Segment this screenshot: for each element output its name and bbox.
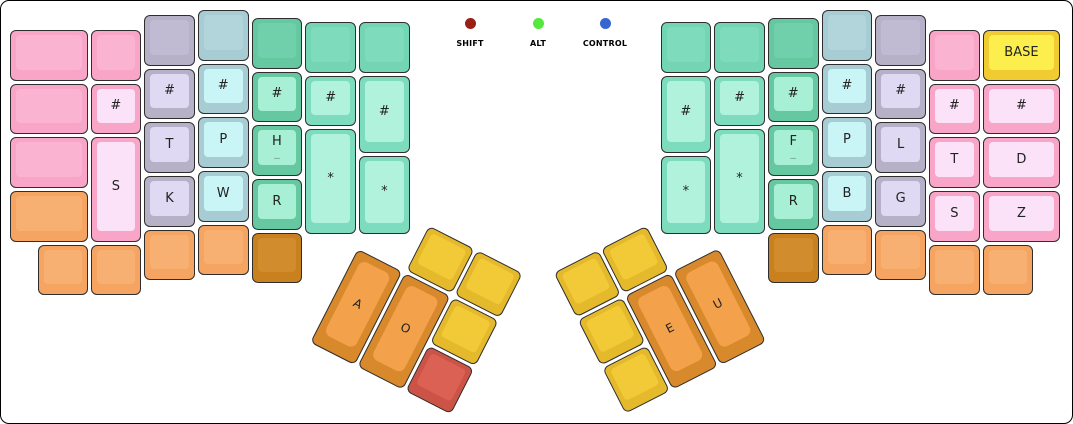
key-blank[interactable] <box>144 15 195 66</box>
key-hash[interactable]: # <box>252 72 303 123</box>
key-blank[interactable] <box>929 245 980 296</box>
key-blank[interactable] <box>875 15 926 66</box>
key-blank[interactable] <box>252 18 303 69</box>
key-hash[interactable]: # <box>144 69 195 120</box>
key-label: * <box>327 172 334 186</box>
key-label: # <box>895 84 906 98</box>
key-star[interactable]: * <box>661 156 712 234</box>
control-dot-icon <box>600 18 611 29</box>
key-label: * <box>683 185 690 199</box>
key-label: * <box>381 185 388 199</box>
key-blank[interactable] <box>305 22 356 73</box>
key-label: # <box>325 91 336 105</box>
key-blank[interactable] <box>38 245 89 296</box>
key-s[interactable]: S <box>929 191 980 242</box>
key-blank[interactable] <box>91 30 142 81</box>
key-k[interactable]: K <box>144 176 195 227</box>
key-z[interactable]: Z <box>983 191 1061 242</box>
key-hash[interactable]: # <box>768 72 819 123</box>
key-p[interactable]: P <box>822 117 873 168</box>
key-sublabel: _ <box>790 151 796 160</box>
key-blank[interactable] <box>714 22 765 73</box>
key-blank[interactable] <box>10 84 88 135</box>
key-label: # <box>218 79 229 93</box>
key-blank[interactable] <box>768 18 819 69</box>
key-blank[interactable] <box>91 245 142 296</box>
key-s[interactable]: S <box>91 137 142 241</box>
key-b[interactable]: B <box>822 171 873 222</box>
key-label: R <box>789 195 798 209</box>
key-label: T <box>166 138 174 152</box>
key-label: # <box>379 105 390 119</box>
key-hash[interactable]: # <box>198 64 249 115</box>
key-r[interactable]: R <box>252 179 303 230</box>
key-sublabel: _ <box>274 151 280 160</box>
key-label: # <box>680 105 691 119</box>
key-blank[interactable] <box>198 10 249 61</box>
key-label: Z <box>1017 207 1026 221</box>
key-blank[interactable] <box>10 191 88 242</box>
key-blank[interactable] <box>144 230 195 281</box>
key-blank[interactable] <box>768 233 819 284</box>
key-label: # <box>164 84 175 98</box>
key-blank[interactable] <box>822 10 873 61</box>
key-label: P <box>843 133 851 147</box>
key-blank[interactable] <box>359 22 410 73</box>
key-label: G <box>896 192 906 206</box>
key-blank[interactable] <box>252 233 303 284</box>
key-label: S <box>112 180 120 194</box>
key-d[interactable]: D <box>983 137 1061 188</box>
key-label: L <box>897 138 904 152</box>
key-star[interactable]: * <box>359 156 410 234</box>
key-label: U <box>711 296 725 311</box>
key-label: # <box>788 87 799 101</box>
shift-dot-icon <box>465 18 476 29</box>
key-hash[interactable]: # <box>714 76 765 127</box>
key-label: B <box>842 187 851 201</box>
key-label: S <box>950 207 958 221</box>
key-label: # <box>1016 99 1027 113</box>
key-blank[interactable] <box>10 30 88 81</box>
key-label: * <box>736 172 743 186</box>
key-hash[interactable]: # <box>875 69 926 120</box>
key-label: D <box>1016 153 1026 167</box>
key-label: K <box>165 192 174 206</box>
key-blank[interactable] <box>875 230 926 281</box>
key-label: BASE <box>1004 46 1038 60</box>
key-h[interactable]: H_ <box>252 125 303 176</box>
key-label: O <box>398 321 412 337</box>
key-label: P <box>219 133 227 147</box>
key-star[interactable]: * <box>305 129 356 233</box>
key-hash[interactable]: # <box>305 76 356 127</box>
key-hash[interactable]: # <box>91 84 142 135</box>
key-label: E <box>664 321 676 336</box>
key-label: W <box>217 187 230 201</box>
key-w[interactable]: W <box>198 171 249 222</box>
key-label: # <box>110 99 121 113</box>
key-label: # <box>734 91 745 105</box>
key-r[interactable]: R <box>768 179 819 230</box>
key-label: A <box>351 297 364 312</box>
key-g[interactable]: G <box>875 176 926 227</box>
key-hash[interactable]: # <box>359 76 410 154</box>
key-hash[interactable]: # <box>983 84 1061 135</box>
keyboard-canvas: SHIFT ALT CONTROL #S#TK#PW#H_R#*#*#*#*#F… <box>0 0 1073 424</box>
key-label: # <box>949 99 960 113</box>
key-f[interactable]: F_ <box>768 125 819 176</box>
key-blank[interactable] <box>983 245 1034 296</box>
key-l[interactable]: L <box>875 122 926 173</box>
key-label: T <box>950 153 958 167</box>
key-hash[interactable]: # <box>929 84 980 135</box>
key-blank[interactable] <box>822 225 873 276</box>
key-blank[interactable] <box>929 30 980 81</box>
key-blank[interactable] <box>10 137 88 188</box>
key-t[interactable]: T <box>144 122 195 173</box>
key-label: # <box>841 79 852 93</box>
key-blank[interactable] <box>661 22 712 73</box>
alt-dot-icon <box>533 18 544 29</box>
key-p[interactable]: P <box>198 117 249 168</box>
legend-label: CONTROL <box>560 39 650 48</box>
key-hash[interactable]: # <box>661 76 712 154</box>
key-t[interactable]: T <box>929 137 980 188</box>
key-label: # <box>271 87 282 101</box>
key-blank[interactable] <box>198 225 249 276</box>
key-base[interactable]: BASE <box>983 30 1061 81</box>
key-hash[interactable]: # <box>822 64 873 115</box>
legend-item-control: CONTROL <box>560 18 650 48</box>
key-label: R <box>272 195 281 209</box>
key-star[interactable]: * <box>714 129 765 233</box>
